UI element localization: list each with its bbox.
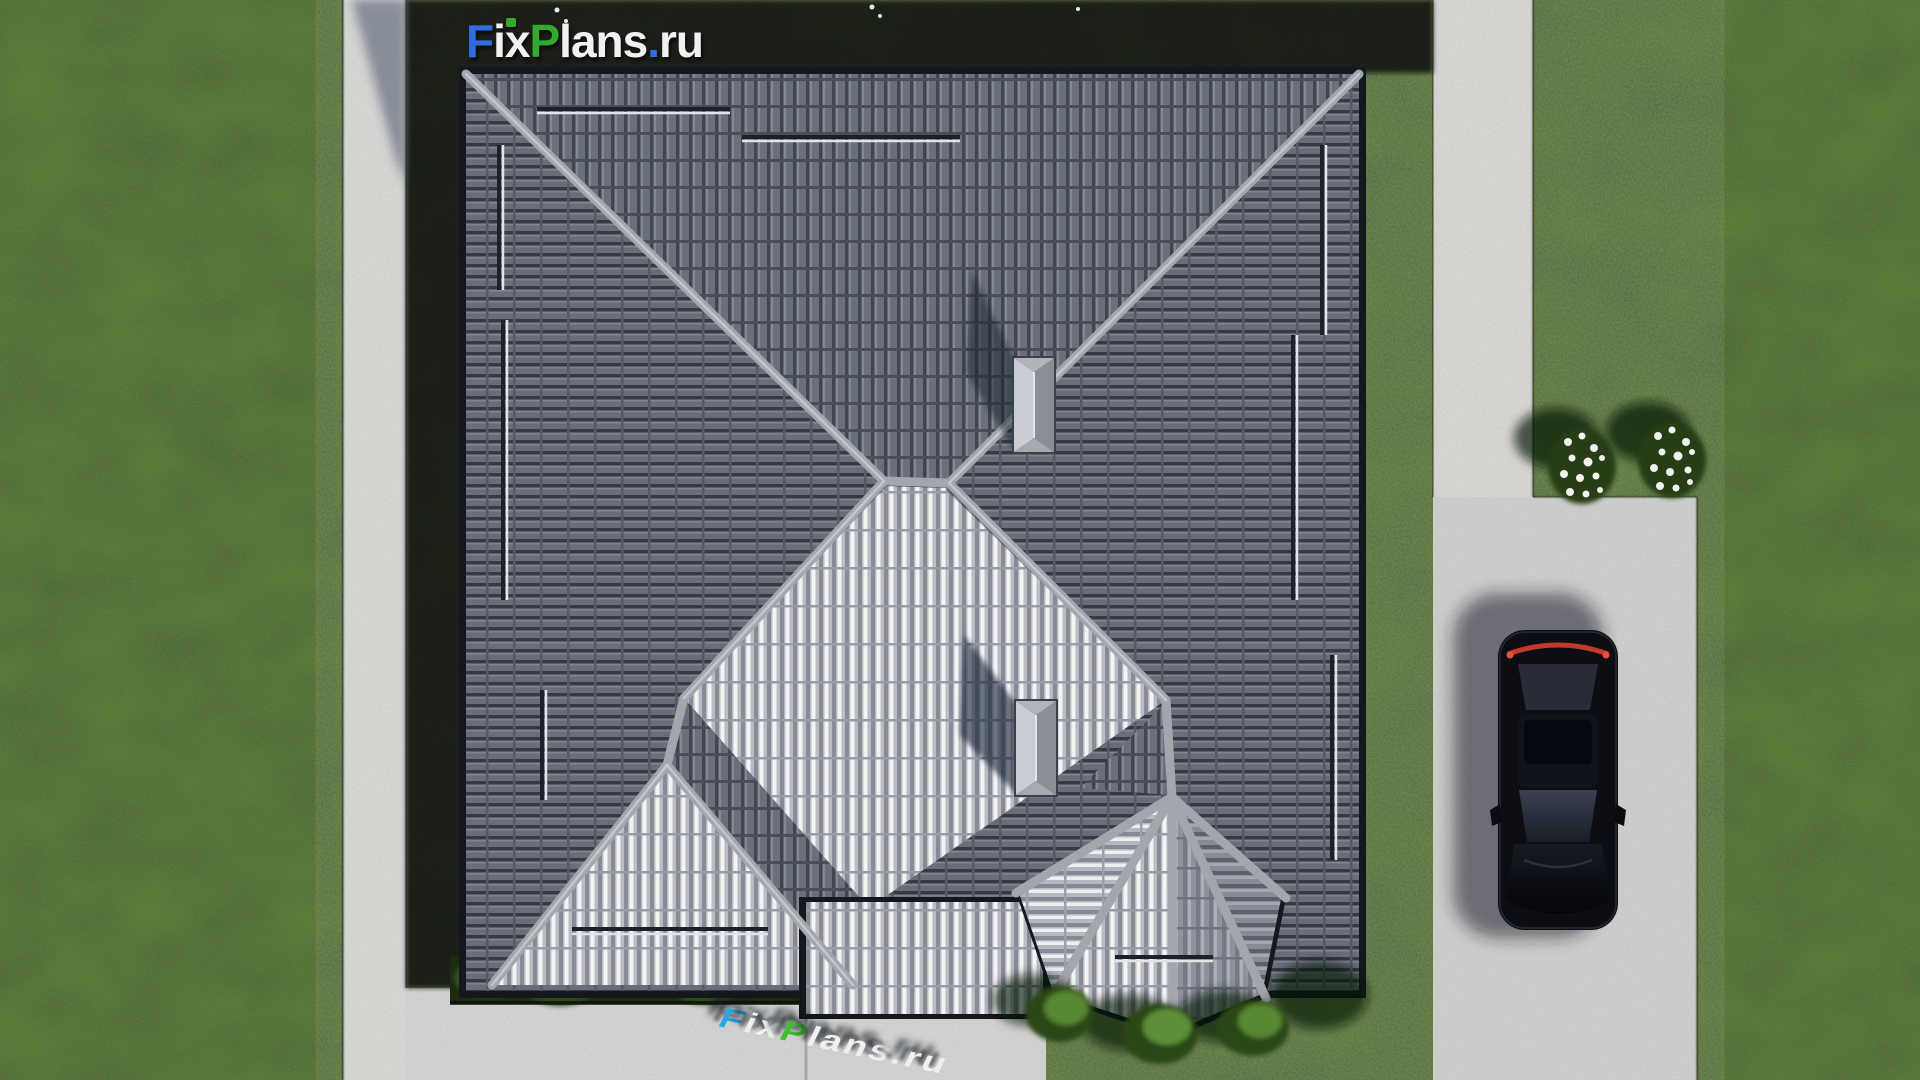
walkway-right xyxy=(1433,0,1533,500)
logo-letter-f: F xyxy=(466,15,493,67)
scene-canvas xyxy=(0,0,1920,1080)
logo-letters-ru: ru xyxy=(659,15,703,67)
chimney-2 xyxy=(1014,699,1058,797)
logo-watermark-top: FixPlans.ru xyxy=(466,14,703,68)
parked-car xyxy=(1453,593,1626,938)
logo-letters-lans: lans xyxy=(559,15,647,67)
logo-letter-p: P xyxy=(529,15,559,67)
logo-i-dot xyxy=(506,18,516,27)
flower-bed-2 xyxy=(1638,422,1706,498)
aerial-render: FixPlans.ru FixPlans.ru xyxy=(0,0,1920,1080)
hip-roof xyxy=(459,67,1366,1038)
flower-bed-1 xyxy=(1548,428,1616,504)
walkway-left xyxy=(343,0,406,1080)
logo-dot: . xyxy=(647,15,659,67)
chimney-1 xyxy=(1012,356,1056,454)
